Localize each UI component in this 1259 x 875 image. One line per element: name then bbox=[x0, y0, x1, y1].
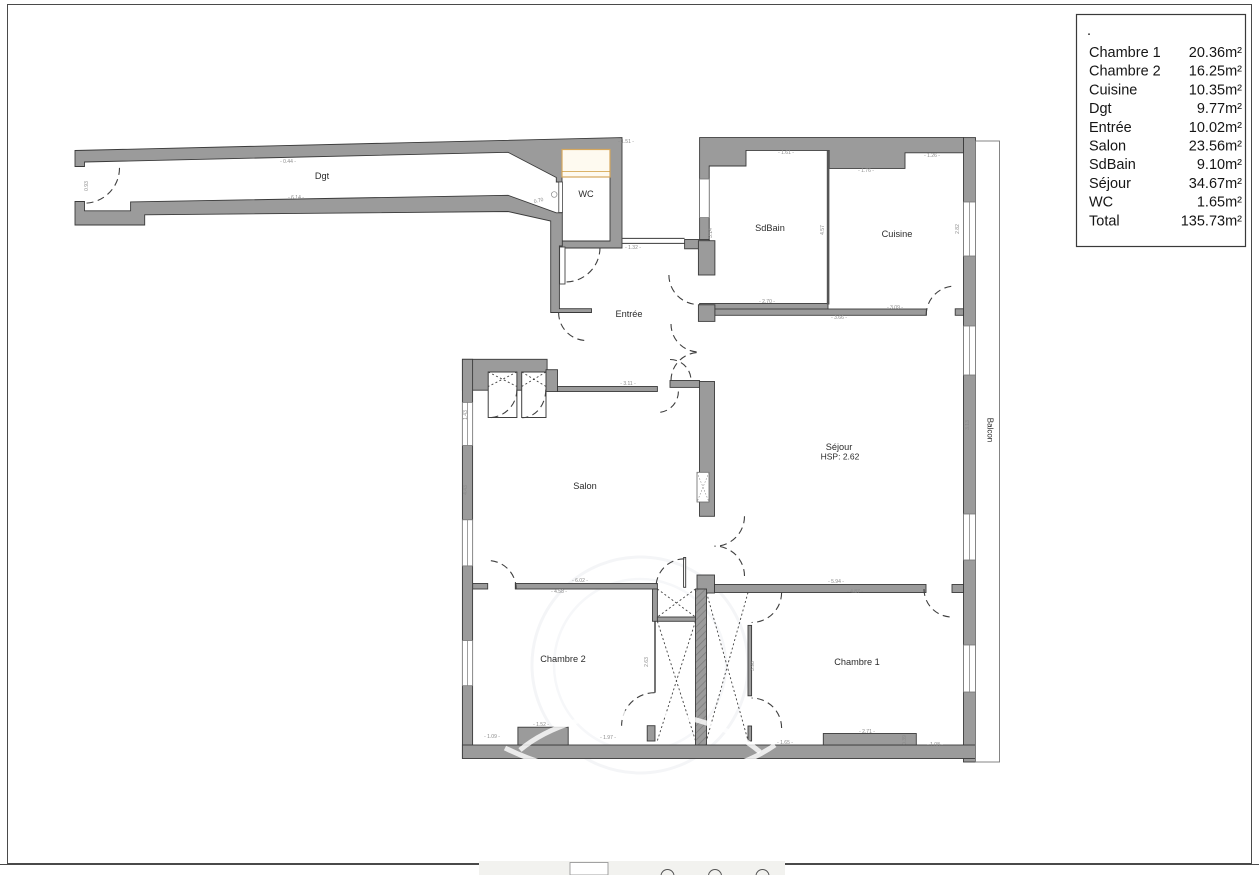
svg-text:- 2.71 -: - 2.71 - bbox=[859, 729, 875, 735]
svg-text:9.10m²: 9.10m² bbox=[1197, 157, 1242, 173]
svg-text:20.36m²: 20.36m² bbox=[1189, 45, 1242, 61]
svg-text:9.77m²: 9.77m² bbox=[1197, 101, 1242, 117]
svg-text:Salon: Salon bbox=[1089, 139, 1126, 155]
svg-text:- 1.65 -: - 1.65 - bbox=[777, 740, 793, 746]
svg-text:Salon: Salon bbox=[573, 481, 597, 491]
svg-text:- 2.70 -: - 2.70 - bbox=[759, 299, 775, 305]
svg-text:3.98: 3.98 bbox=[750, 661, 756, 671]
svg-text:16.25m²: 16.25m² bbox=[1189, 64, 1242, 80]
svg-text:135.73m²: 135.73m² bbox=[1181, 213, 1242, 229]
svg-text:0.93: 0.93 bbox=[84, 181, 90, 191]
svg-text:23.56m²: 23.56m² bbox=[1189, 139, 1242, 155]
svg-text:- 3.11 -: - 3.11 - bbox=[620, 381, 636, 387]
svg-text:Séjour: Séjour bbox=[826, 442, 853, 452]
svg-text:Chambre 2: Chambre 2 bbox=[1089, 64, 1161, 80]
svg-text:- 1.76 -: - 1.76 - bbox=[858, 168, 874, 174]
svg-text:- 1.51 -: - 1.51 - bbox=[618, 139, 634, 145]
svg-text:Séjour: Séjour bbox=[1089, 176, 1131, 192]
svg-text:- 6.14 -: - 6.14 - bbox=[288, 195, 304, 201]
svg-text:1.65m²: 1.65m² bbox=[1197, 195, 1242, 211]
svg-text:Dgt: Dgt bbox=[1089, 101, 1112, 117]
svg-text:- 4.87 -: - 4.87 - bbox=[847, 589, 863, 595]
svg-text:- 1.09 -: - 1.09 - bbox=[484, 734, 500, 740]
svg-text:WC: WC bbox=[578, 189, 594, 199]
svg-text:4.57: 4.57 bbox=[820, 225, 826, 235]
svg-text:Chambre 1: Chambre 1 bbox=[1089, 45, 1161, 61]
svg-text:4.43: 4.43 bbox=[463, 485, 469, 495]
svg-text:- 1.32 -: - 1.32 - bbox=[625, 245, 641, 251]
svg-text:- 3.66 -: - 3.66 - bbox=[831, 315, 847, 321]
svg-text:Chambre 2: Chambre 2 bbox=[540, 654, 585, 664]
svg-text:- 3.09 -: - 3.09 - bbox=[887, 305, 903, 311]
svg-text:Total: Total bbox=[1089, 213, 1120, 229]
svg-text:Entrée: Entrée bbox=[615, 309, 642, 319]
svg-text:- 1.26 -: - 1.26 - bbox=[924, 153, 940, 159]
svg-text:Balcon: Balcon bbox=[986, 418, 995, 442]
svg-text:- 1.52 -: - 1.52 - bbox=[533, 722, 549, 728]
svg-text:HSP: 2.62: HSP: 2.62 bbox=[821, 452, 860, 462]
svg-text:- 5.94 -: - 5.94 - bbox=[828, 579, 844, 585]
svg-text:- 1.97 -: - 1.97 - bbox=[600, 735, 616, 741]
svg-text:2.82: 2.82 bbox=[955, 224, 961, 234]
svg-text:2.63: 2.63 bbox=[644, 657, 650, 667]
svg-text:Chambre 1: Chambre 1 bbox=[834, 657, 879, 667]
svg-text:SdBain: SdBain bbox=[1089, 157, 1136, 173]
svg-text:3.14: 3.14 bbox=[708, 228, 714, 238]
svg-text:.: . bbox=[1087, 23, 1091, 39]
svg-text:Dgt: Dgt bbox=[315, 171, 330, 181]
svg-text:SdBain: SdBain bbox=[755, 223, 785, 233]
svg-text:0.70: 0.70 bbox=[533, 197, 544, 205]
svg-text:Cuisine: Cuisine bbox=[1089, 82, 1137, 98]
svg-text:34.67m²: 34.67m² bbox=[1189, 176, 1242, 192]
svg-text:10.35m²: 10.35m² bbox=[1189, 82, 1242, 98]
svg-text:0.39: 0.39 bbox=[902, 735, 908, 745]
svg-text:Entrée: Entrée bbox=[1089, 120, 1132, 136]
svg-text:- 4.58 -: - 4.58 - bbox=[551, 589, 567, 595]
svg-text:- 0.44 -: - 0.44 - bbox=[280, 159, 296, 165]
svg-text:WC: WC bbox=[1089, 195, 1113, 211]
svg-text:10.02m²: 10.02m² bbox=[1189, 120, 1242, 136]
svg-text:- 6.02 -: - 6.02 - bbox=[572, 578, 588, 584]
svg-text:- 1.61 -: - 1.61 - bbox=[778, 150, 794, 156]
svg-text:3.13: 3.13 bbox=[965, 420, 971, 430]
svg-text:- 1.08 -: - 1.08 - bbox=[927, 742, 943, 748]
svg-text:1.43: 1.43 bbox=[463, 410, 469, 420]
svg-text:Cuisine: Cuisine bbox=[882, 229, 913, 239]
